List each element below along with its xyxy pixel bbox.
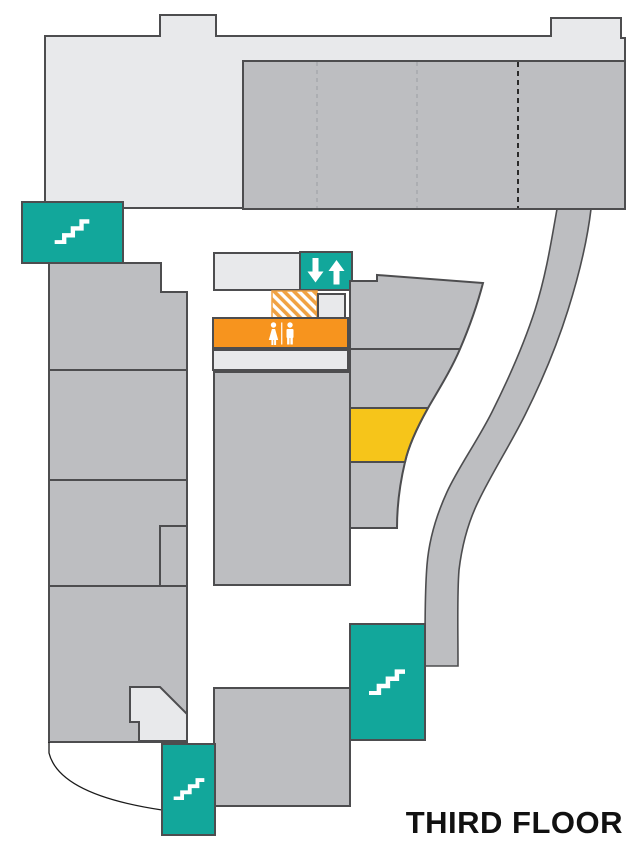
- service-bar: [213, 350, 348, 370]
- curved-corridor: [425, 209, 591, 666]
- bottom-center-block: [214, 688, 350, 806]
- floor-plan-canvas: THIRD FLOOR: [0, 0, 642, 850]
- service-block-a: [214, 253, 300, 290]
- center-block: [214, 372, 350, 585]
- highlighted-room-yellow: [350, 408, 428, 462]
- service-block-b: [318, 294, 345, 318]
- building-arc-outline: [49, 742, 162, 810]
- left-wing-block: [49, 263, 187, 742]
- restroom-block: [213, 318, 348, 348]
- floor-plan-map: [0, 0, 642, 850]
- floor-title: THIRD FLOOR: [406, 805, 623, 841]
- hatched-area: [272, 291, 317, 318]
- anchor-store-block: [243, 61, 625, 209]
